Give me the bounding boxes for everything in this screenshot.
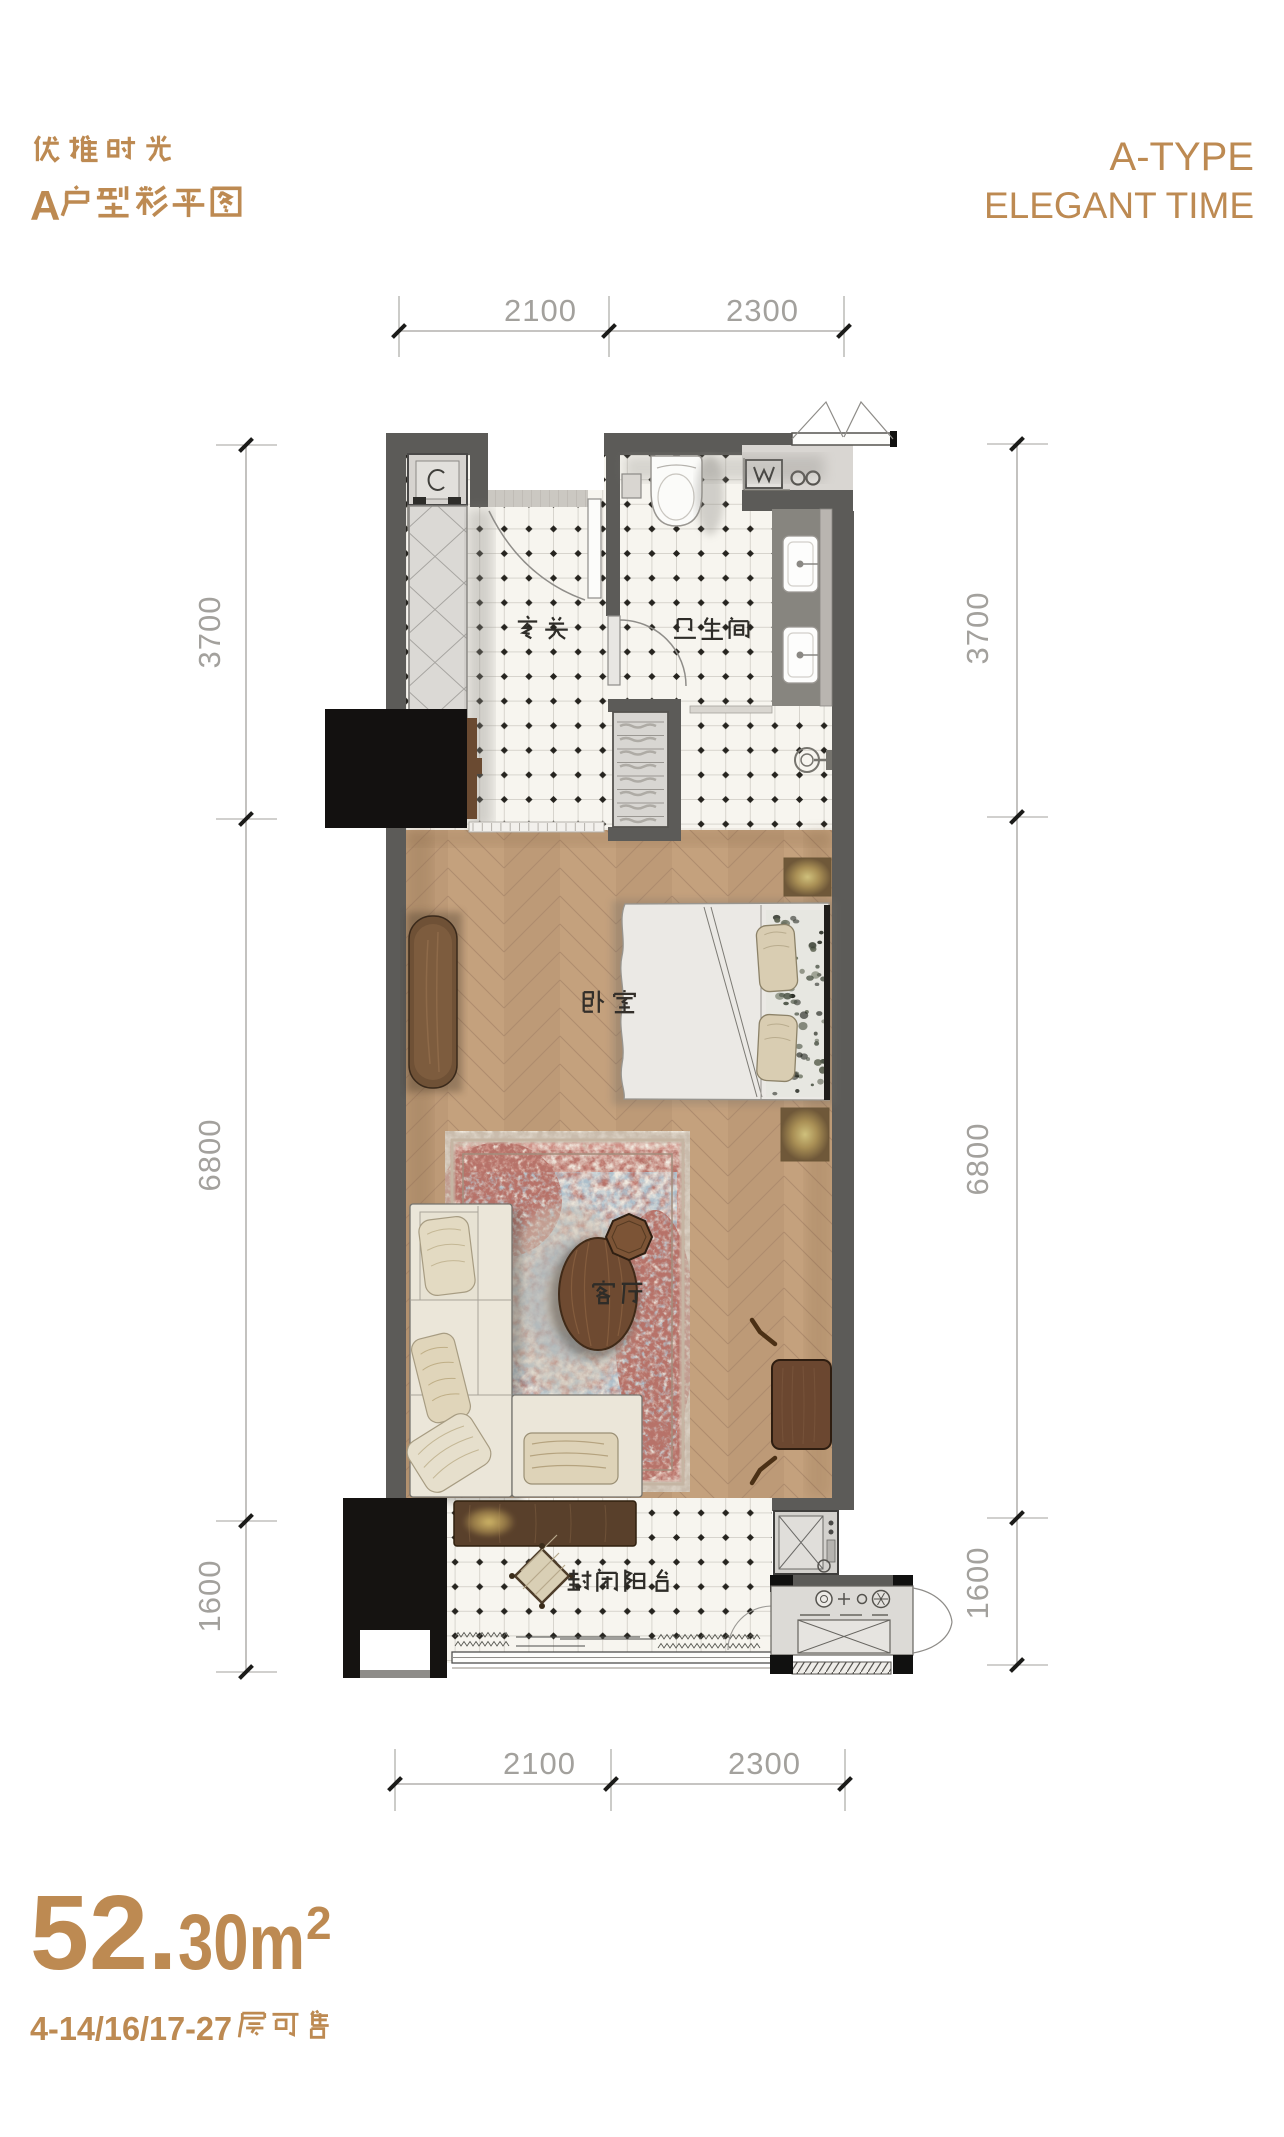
- svg-text:A-TYPE: A-TYPE: [1110, 135, 1254, 179]
- svg-text:52.: 52.: [30, 1874, 177, 1992]
- svg-text:3700: 3700: [192, 596, 227, 669]
- svg-text:4-14/16/17-27: 4-14/16/17-27: [30, 2010, 232, 2047]
- svg-text:2: 2: [306, 1897, 332, 1949]
- svg-text:1600: 1600: [960, 1547, 995, 1620]
- svg-text:A: A: [30, 182, 60, 229]
- svg-text:2300: 2300: [726, 293, 799, 328]
- svg-text:ELEGANT TIME: ELEGANT TIME: [984, 185, 1254, 226]
- svg-text:6800: 6800: [960, 1123, 995, 1196]
- svg-text:6800: 6800: [192, 1119, 227, 1192]
- svg-text:30m: 30m: [178, 1897, 305, 1986]
- svg-text:3700: 3700: [960, 592, 995, 665]
- svg-text:2100: 2100: [504, 293, 577, 328]
- svg-text:1600: 1600: [192, 1560, 227, 1633]
- svg-text:2300: 2300: [728, 1746, 801, 1781]
- svg-text:2100: 2100: [503, 1746, 576, 1781]
